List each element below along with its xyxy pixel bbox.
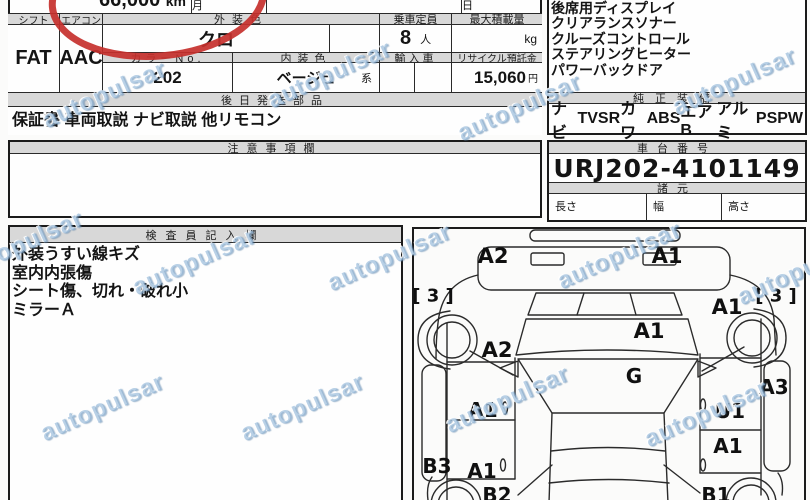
roof-line: [551, 448, 665, 452]
equipment-code: PW: [777, 110, 803, 128]
spec-width-label: 幅: [653, 201, 664, 213]
option-item: 後席用ディスプレイ: [551, 1, 803, 16]
import-value-cell: [380, 63, 415, 92]
auction-sheet: 66,000 km 年 月 月 日 シフト エアコン 外装色 乗車定員 最大積載…: [0, 0, 810, 500]
wheel-rear-left: [431, 480, 481, 500]
expiry-date-label: 月 日: [462, 0, 540, 13]
equipment-codes: ナビ TV SR カワ ABS エアB アルミ PS PW: [551, 104, 803, 133]
roof-line: [549, 480, 669, 484]
windshield: [518, 359, 698, 413]
door-handle: [701, 459, 706, 471]
inspector-comment: シート傷、切れ・破れ小: [12, 283, 392, 302]
option-item: ステアリングヒーター: [551, 47, 803, 62]
chassis-header: 車台番号: [549, 142, 805, 154]
aircon-value: AAC: [60, 25, 103, 92]
import-header: 輸入車: [380, 52, 452, 63]
color-no-value: 202: [103, 63, 233, 92]
inspector-comment: ミラーＡ: [12, 302, 392, 321]
aircon-header: エアコン: [60, 13, 103, 25]
headlight-right: [643, 253, 676, 265]
option-item: パワーバックドア: [551, 63, 803, 78]
door-handle: [701, 399, 706, 411]
payload-unit: kg: [524, 32, 537, 46]
rocker-left: [422, 365, 446, 481]
equipment-header: 純正装備: [549, 92, 805, 104]
equipment-code: アルミ: [716, 95, 756, 143]
door-handle: [503, 402, 508, 414]
grid-line: [261, 0, 267, 13]
equipment-code: PS: [756, 110, 777, 128]
front-bumper: [478, 247, 730, 290]
shift-header: シフト: [8, 13, 60, 25]
equipment-code: SR: [598, 110, 620, 128]
equipment-code: ABS: [647, 110, 681, 128]
capacity-header: 乗車定員: [380, 13, 452, 25]
spec-height-label: 高さ: [728, 201, 750, 213]
roof-bar: [530, 230, 680, 241]
capacity-unit: 人: [420, 31, 431, 47]
car-damage-diagram: [412, 227, 806, 500]
hood-panel: [516, 319, 698, 355]
spec-height-cell: 高さ: [722, 194, 805, 220]
interior-color-suffix: 系: [361, 70, 372, 86]
payload-header: 最大積載量: [452, 13, 542, 25]
recycle-value: 15,060 円: [452, 63, 542, 92]
odometer-reading: 66,000 km: [8, 0, 186, 13]
exterior-color-value: クロ: [103, 25, 330, 52]
inspector-comment: 室内内張傷: [12, 265, 392, 284]
spec-width-cell: 幅: [647, 194, 722, 220]
headlight-left: [531, 253, 564, 265]
caution-header: 注意事項欄: [10, 142, 540, 154]
odometer-value: 66,000: [99, 0, 160, 11]
interior-color-text: ベージュ: [277, 67, 336, 88]
inspector-comments: 外装うすい線キズ 室内内張傷 シート傷、切れ・破れ小 ミラーＡ: [12, 246, 392, 320]
interior-color-header: 内装色: [233, 52, 380, 63]
equipment-code: カワ: [620, 95, 646, 143]
recycle-unit: 円: [528, 70, 538, 85]
inspector-header: 検査員記入欄: [10, 227, 401, 243]
interior-color-value: ベージュ 系: [233, 63, 380, 92]
registration-date-label: 年 月: [192, 0, 270, 13]
rocker-right: [764, 361, 790, 471]
exterior-color-header: 外装色: [103, 13, 380, 25]
cowl-panel: [528, 293, 682, 315]
payload-value: kg: [452, 25, 542, 52]
color-no-header: カラーNo.: [103, 52, 233, 63]
spec-length-label: 長さ: [555, 201, 577, 213]
inspector-comment: 外装うすい線キズ: [12, 246, 392, 265]
recycle-amount: 15,060: [474, 68, 526, 88]
equipment-code: TV: [577, 110, 597, 128]
door-handle: [501, 459, 506, 471]
shift-value: FAT: [8, 25, 60, 92]
mirror-right: [698, 361, 716, 377]
capacity-number: 8: [400, 27, 411, 50]
empty-cell: [330, 25, 380, 52]
option-item: クルーズコントロール: [551, 32, 803, 47]
option-item: クリアランスソナー: [551, 16, 803, 31]
recycle-header: リサイクル預託金: [452, 52, 542, 63]
specs-header: 諸元: [549, 182, 805, 194]
spec-length-cell: 長さ: [549, 194, 647, 220]
options-list: 後席用ディスプレイ クリアランスソナー クルーズコントロール ステアリングヒータ…: [551, 1, 803, 78]
odometer-unit: km: [166, 0, 186, 9]
equipment-code: エアB: [680, 98, 716, 140]
import-value-cell: [415, 63, 452, 92]
chassis-number: URJ202-4101149: [549, 154, 805, 182]
shipping-items: 保証書 車両取説 ナビ取説 他リモコン: [8, 107, 542, 135]
capacity-value: 8 人: [380, 25, 452, 52]
equipment-code: ナビ: [551, 95, 577, 143]
shipping-header: 後日発送部品: [8, 92, 542, 107]
